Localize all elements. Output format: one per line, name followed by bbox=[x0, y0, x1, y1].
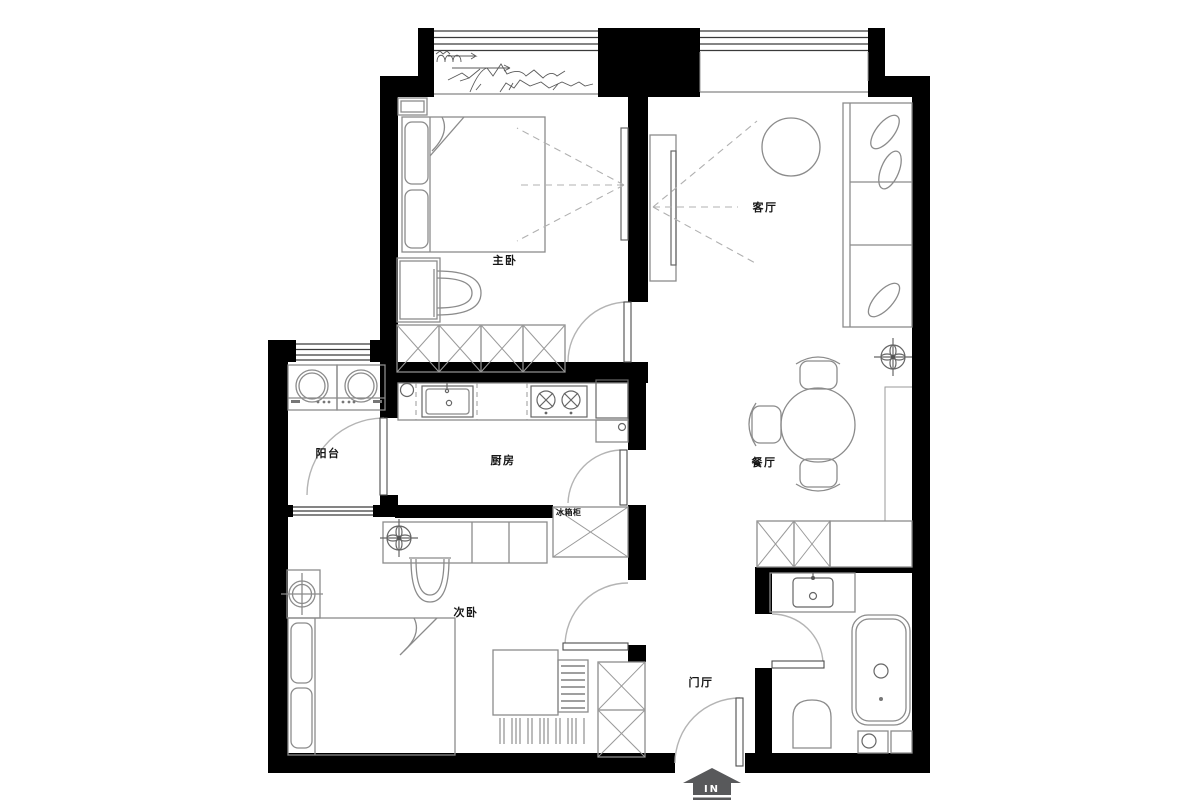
dining-chair-top bbox=[796, 357, 840, 389]
bathroom-sink bbox=[770, 573, 855, 612]
ceiling-lamp-dining bbox=[874, 338, 912, 376]
door-stop bbox=[619, 424, 626, 431]
refrigerator bbox=[596, 380, 628, 418]
nightstand-top bbox=[401, 101, 424, 112]
label-balcony: 阳台 bbox=[316, 446, 341, 460]
kitchen-sink bbox=[422, 383, 473, 417]
label-fridge-cabinet: 冰箱柜 bbox=[556, 507, 582, 517]
cooktop bbox=[531, 386, 587, 417]
bay-window-living bbox=[700, 31, 868, 92]
washing-machine-2 bbox=[337, 365, 385, 410]
plant-sketch bbox=[436, 51, 593, 92]
floor-plan: 主卧 客厅 阳台 bbox=[0, 0, 1200, 800]
label-living-room: 客厅 bbox=[752, 200, 778, 214]
bedside-stand bbox=[281, 570, 323, 618]
toilet bbox=[793, 700, 831, 748]
bedroom2-cabinet bbox=[383, 522, 547, 563]
dining-table bbox=[781, 388, 855, 462]
dining-chair-left bbox=[749, 403, 781, 446]
bathroom-washer bbox=[858, 731, 912, 753]
dressing-chair bbox=[434, 269, 481, 317]
entry-label: IN bbox=[704, 784, 720, 795]
kitchen-door bbox=[568, 450, 627, 505]
entry-marker: IN bbox=[683, 768, 741, 800]
second-bed bbox=[288, 618, 455, 755]
label-kitchen: 厨房 bbox=[491, 453, 516, 467]
tv-sightlines-bedroom bbox=[517, 128, 624, 241]
floor-drain bbox=[401, 384, 414, 397]
second-bedroom-door bbox=[563, 583, 628, 650]
balcony-window-top bbox=[296, 344, 370, 360]
round-chair bbox=[762, 118, 820, 176]
master-bedroom-door bbox=[568, 302, 631, 362]
label-entrance-hall: 门厅 bbox=[689, 675, 714, 689]
label-second-bedroom: 次卧 bbox=[454, 605, 479, 619]
desk-chair bbox=[409, 558, 451, 602]
dining-chair-bottom bbox=[796, 459, 840, 491]
label-master-bedroom: 主卧 bbox=[493, 253, 518, 267]
floor-mat bbox=[500, 718, 584, 744]
entry-door bbox=[675, 698, 743, 766]
sofa bbox=[843, 103, 912, 327]
bathroom-door bbox=[772, 614, 824, 668]
bulkhead-line bbox=[885, 387, 912, 521]
bedroom2-wardrobe bbox=[598, 662, 645, 757]
balcony-window-bottom bbox=[293, 507, 373, 515]
bathtub bbox=[852, 615, 910, 725]
label-dining-room: 餐厅 bbox=[751, 455, 777, 469]
floor-plan-canvas: 主卧 客厅 阳台 bbox=[0, 0, 1200, 800]
tv-sightlines-living bbox=[653, 121, 757, 264]
ceiling-lamp-bedroom2 bbox=[380, 519, 418, 557]
dining-cabinet bbox=[757, 521, 912, 567]
desk bbox=[493, 650, 588, 715]
washing-machine-1 bbox=[288, 365, 337, 410]
